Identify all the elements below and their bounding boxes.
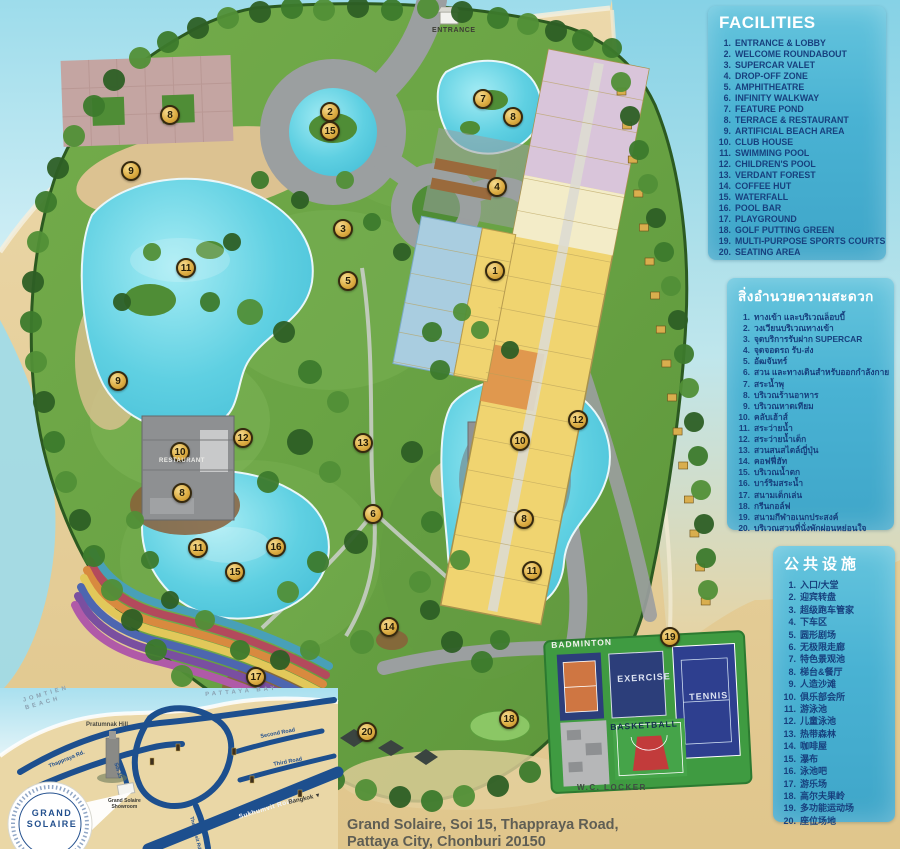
address-line-2: Pattaya City, Chonburi 20150 xyxy=(347,834,619,849)
locker-label: W.C. LOCKER xyxy=(577,783,647,792)
legend-item: 20.座位场地 xyxy=(782,815,886,827)
map-marker-18: 18 xyxy=(499,709,519,729)
legend-item: 12.CHILDREN'S POOL xyxy=(717,159,877,170)
legend-item: 14.COFFEE HUT xyxy=(717,181,877,192)
legend-item: 6.无极限走廊 xyxy=(782,641,886,653)
legend-item: 6.INFINITY WALKWAY xyxy=(717,93,877,104)
facilities-legend-zh-list: 1.入口/大堂2.迎宾转盘3.超级跑车管家4.下车区5.圆形剧场6.无极限走廊7… xyxy=(782,579,886,827)
legend-item: 3.超级跑车管家 xyxy=(782,604,886,616)
map-marker-3: 3 xyxy=(333,219,353,239)
legend-item: 18.高尔夫果岭 xyxy=(782,790,886,802)
legend-item: 7.FEATURE POND xyxy=(717,104,877,115)
legend-item: 2.WELCOME ROUNDABOUT xyxy=(717,49,877,60)
map-marker-4: 4 xyxy=(487,177,507,197)
facilities-legend-en-list: 1.ENTRANCE & LOBBY2.WELCOME ROUNDABOUT3.… xyxy=(717,38,877,258)
legend-item: 9.บริเวณหาดเทียม xyxy=(736,401,885,412)
map-marker-20: 20 xyxy=(357,722,377,742)
legend-item: 9.人造沙滩 xyxy=(782,678,886,690)
sports-courts xyxy=(544,631,752,793)
map-marker-15: 15 xyxy=(320,121,340,141)
pratumnak-hill-label: Pratumnak Hill xyxy=(86,722,128,728)
legend-item: 1.ENTRANCE & LOBBY xyxy=(717,38,877,49)
legend-item: 10.CLUB HOUSE xyxy=(717,137,877,148)
legend-item: 13.VERDANT FOREST xyxy=(717,170,877,181)
legend-item: 17.游乐场 xyxy=(782,778,886,790)
grand-solaire-logo-text: GRANDSOLAIRE xyxy=(26,808,78,830)
project-address: Grand Solaire, Soi 15, Thappraya Road, P… xyxy=(347,817,619,849)
address-line-1: Grand Solaire, Soi 15, Thappraya Road, xyxy=(347,817,619,834)
site-plan-page: 1234567888899101011111112121314151516171… xyxy=(0,0,900,849)
facilities-legend-th-list: 1.ทางเข้า และบริเวณล็อบบี้2.วงเวียนบริเว… xyxy=(736,312,885,534)
legend-item: 11.游泳池 xyxy=(782,703,886,715)
map-marker-9: 9 xyxy=(121,161,141,181)
legend-item: 18.GOLF PUTTING GREEN xyxy=(717,225,877,236)
legend-item: 19.多功能运动场 xyxy=(782,802,886,814)
map-marker-16: 16 xyxy=(266,537,286,557)
legend-item: 4.จุดจอดรถ รับ-ส่ง xyxy=(736,345,885,356)
facilities-legend-th: สิ่งอำนวยความสะดวก 1.ทางเข้า และบริเวณล็… xyxy=(727,278,894,530)
map-marker-8: 8 xyxy=(160,105,180,125)
map-marker-5: 5 xyxy=(338,271,358,291)
legend-item: 14.咖啡屋 xyxy=(782,740,886,752)
map-marker-19: 19 xyxy=(660,627,680,647)
legend-item: 3.จุดบริการรับฝาก SUPERCAR xyxy=(736,334,885,345)
map-marker-12: 12 xyxy=(568,410,588,430)
restaurant-label: RESTAURANT xyxy=(159,458,205,464)
legend-item: 17.PLAYGROUND xyxy=(717,214,877,225)
legend-item: 2.迎宾转盘 xyxy=(782,591,886,603)
map-marker-1: 1 xyxy=(485,261,505,281)
map-marker-11: 11 xyxy=(176,258,196,278)
legend-item: 4.下车区 xyxy=(782,616,886,628)
legend-item: 14.คอฟฟี่ฮัท xyxy=(736,456,885,467)
entrance-label: ENTRANCE xyxy=(432,27,476,34)
legend-item: 15.瀑布 xyxy=(782,753,886,765)
legend-item: 10.คลับเฮ้าส์ xyxy=(736,412,885,423)
legend-item: 20.บริเวณสวนที่นั่งพักผ่อนหย่อนใจ xyxy=(736,523,885,534)
legend-item: 5.圆形剧场 xyxy=(782,629,886,641)
legend-item: 13.热带森林 xyxy=(782,728,886,740)
map-marker-17: 17 xyxy=(246,667,266,687)
legend-item: 4.DROP-OFF ZONE xyxy=(717,71,877,82)
legend-item: 11.SWIMMING POOL xyxy=(717,148,877,159)
map-marker-12: 12 xyxy=(233,428,253,448)
legend-item: 20.SEATING AREA xyxy=(717,247,877,258)
map-marker-10: 10 xyxy=(510,431,530,451)
legend-item: 5.อัฒจันทร์ xyxy=(736,356,885,367)
tennis-label: TENNIS xyxy=(689,690,728,702)
facilities-legend-en-title: FACILITIES xyxy=(719,13,877,33)
legend-item: 15.บริเวณน้ำตก xyxy=(736,467,885,478)
legend-item: 1.入口/大堂 xyxy=(782,579,886,591)
legend-item: 19.สนามกีฬาอเนกประสงค์ xyxy=(736,512,885,523)
legend-item: 9.ARTIFICIAL BEACH AREA xyxy=(717,126,877,137)
legend-item: 8.บริเวณร้านอาหาร xyxy=(736,390,885,401)
facilities-legend-zh-title: 公共设施 xyxy=(784,553,886,574)
legend-item: 6.สวน และทางเดินสำหรับออกกำลังกาย xyxy=(736,367,885,378)
facilities-legend-en: FACILITIES 1.ENTRANCE & LOBBY2.WELCOME R… xyxy=(708,6,886,260)
map-marker-8: 8 xyxy=(172,483,192,503)
legend-item: 10.俱乐部会所 xyxy=(782,691,886,703)
clubhouse-restaurant xyxy=(130,416,240,535)
legend-item: 11.สระว่ายน้ำ xyxy=(736,423,885,434)
legend-item: 5.AMPHITHEATRE xyxy=(717,82,877,93)
map-marker-9: 9 xyxy=(108,371,128,391)
legend-item: 16.บาร์ริมสระน้ำ xyxy=(736,478,885,489)
map-marker-2: 2 xyxy=(320,102,340,122)
map-marker-14: 14 xyxy=(379,617,399,637)
map-marker-8: 8 xyxy=(503,107,523,127)
legend-item: 1.ทางเข้า และบริเวณล็อบบี้ xyxy=(736,312,885,323)
legend-item: 13.สวนสนสไตล์ญี่ปุ่น xyxy=(736,445,885,456)
legend-item: 16.泳池吧 xyxy=(782,765,886,777)
facilities-legend-zh: 公共设施 1.入口/大堂2.迎宾转盘3.超级跑车管家4.下车区5.圆形剧场6.无… xyxy=(773,546,895,822)
map-marker-7: 7 xyxy=(473,89,493,109)
legend-item: 17.สนามเด็กเล่น xyxy=(736,490,885,501)
legend-item: 19.MULTI-PURPOSE SPORTS COURTS xyxy=(717,236,877,247)
showroom-label: Grand SolaireShowroom xyxy=(108,798,141,810)
map-marker-13: 13 xyxy=(353,433,373,453)
map-marker-8: 8 xyxy=(514,509,534,529)
legend-item: 12.儿童泳池 xyxy=(782,715,886,727)
legend-item: 18.กรีนกอล์ฟ xyxy=(736,501,885,512)
map-marker-15: 15 xyxy=(225,562,245,582)
legend-item: 12.สระว่ายน้ำเด็ก xyxy=(736,434,885,445)
facilities-legend-th-title: สิ่งอำนวยความสะดวก xyxy=(738,285,885,307)
map-marker-11: 11 xyxy=(188,538,208,558)
legend-item: 16.POOL BAR xyxy=(717,203,877,214)
legend-item: 3.SUPERCAR VALET xyxy=(717,60,877,71)
legend-item: 7.特色景观池 xyxy=(782,653,886,665)
legend-item: 8.TERRACE & RESTAURANT xyxy=(717,115,877,126)
legend-item: 2.วงเวียนบริเวณทางเข้า xyxy=(736,323,885,334)
map-marker-11: 11 xyxy=(522,561,542,581)
legend-item: 15.WATERFALL xyxy=(717,192,877,203)
legend-item: 8.梯台&餐厅 xyxy=(782,666,886,678)
map-marker-6: 6 xyxy=(363,504,383,524)
legend-item: 7.สระน้ำพุ xyxy=(736,379,885,390)
